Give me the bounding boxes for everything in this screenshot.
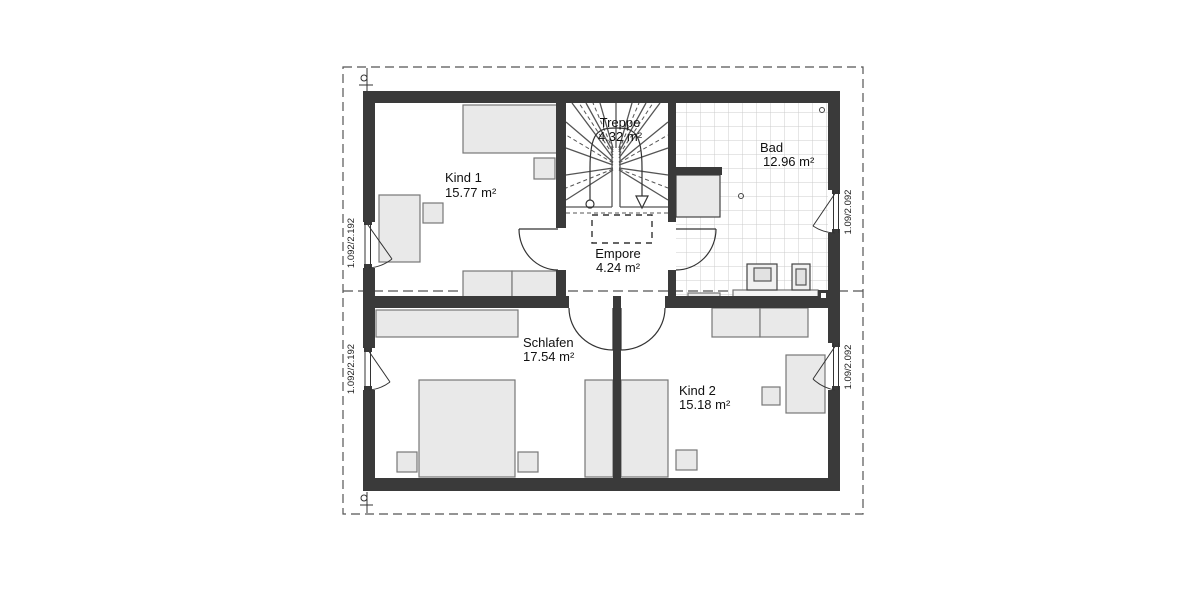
wardrobe <box>376 310 518 337</box>
wall-top <box>363 91 840 103</box>
window-size-label: 1.09/2.092 <box>843 190 854 235</box>
sideboard <box>512 271 560 297</box>
bed <box>379 195 420 262</box>
floor-plan-page: Kind 1 15.77 m² Treppe 4.32 m² Bad 12.96… <box>0 0 1200 600</box>
room-area: 15.77 m² <box>445 185 497 200</box>
duct-inner <box>821 293 826 298</box>
sink-basin <box>754 268 771 281</box>
sideboard <box>463 271 512 297</box>
nightstand <box>397 452 417 472</box>
wall-kind1-stairs <box>556 103 566 228</box>
bed <box>585 380 613 477</box>
nightstand <box>423 203 443 223</box>
stool <box>762 387 780 405</box>
window-size-label: 1.092/2.192 <box>346 218 357 268</box>
wall-left <box>363 390 375 491</box>
wardrobe <box>463 105 560 153</box>
room-label: Kind 2 <box>679 383 716 398</box>
wall-stairs-bad <box>668 270 676 296</box>
toilet-bowl <box>796 269 806 285</box>
room-label: Kind 1 <box>445 170 482 185</box>
wall-shower-stub <box>676 167 722 175</box>
wall-left <box>363 91 375 222</box>
room-area: 15.18 m² <box>679 397 731 412</box>
wall-kind1-stairs <box>556 270 566 296</box>
floor-plan: Kind 1 15.77 m² Treppe 4.32 m² Bad 12.96… <box>0 0 1200 600</box>
wall-right <box>828 390 840 491</box>
wall-middle <box>665 296 840 308</box>
walkline-arrow-icon <box>636 196 648 208</box>
room-label: Treppe <box>600 115 641 130</box>
wall-bottom <box>363 478 840 491</box>
sofa <box>760 308 808 337</box>
window-size-label: 1.092/2.192 <box>346 344 357 394</box>
nightstand <box>518 452 538 472</box>
wall-middle <box>363 296 569 308</box>
empore-opening-dashed <box>592 215 652 243</box>
sofa <box>712 308 760 337</box>
wall-right <box>828 91 840 190</box>
stool <box>534 158 555 179</box>
wall-stairs-bad <box>668 103 676 222</box>
bed <box>621 380 668 477</box>
wall-right <box>828 233 840 343</box>
room-label: Empore <box>595 246 641 261</box>
room-area: 12.96 m² <box>763 154 815 169</box>
window-left-bottom <box>364 346 390 392</box>
section-marker-bottom-icon <box>360 492 373 513</box>
bed <box>419 380 515 477</box>
shower <box>676 175 720 217</box>
door-schlafen <box>569 308 613 350</box>
wall-partition <box>613 296 621 478</box>
room-label: Schlafen <box>523 335 574 350</box>
room-area: 17.54 m² <box>523 349 575 364</box>
section-marker-top-icon <box>359 68 373 91</box>
window-size-label: 1.09/2.092 <box>843 345 854 390</box>
door-kind2 <box>621 308 665 350</box>
room-label: Bad <box>760 140 783 155</box>
room-area: 4.32 m² <box>598 129 643 144</box>
door-kind1 <box>519 229 558 270</box>
nightstand <box>676 450 697 470</box>
room-area: 4.24 m² <box>596 260 641 275</box>
